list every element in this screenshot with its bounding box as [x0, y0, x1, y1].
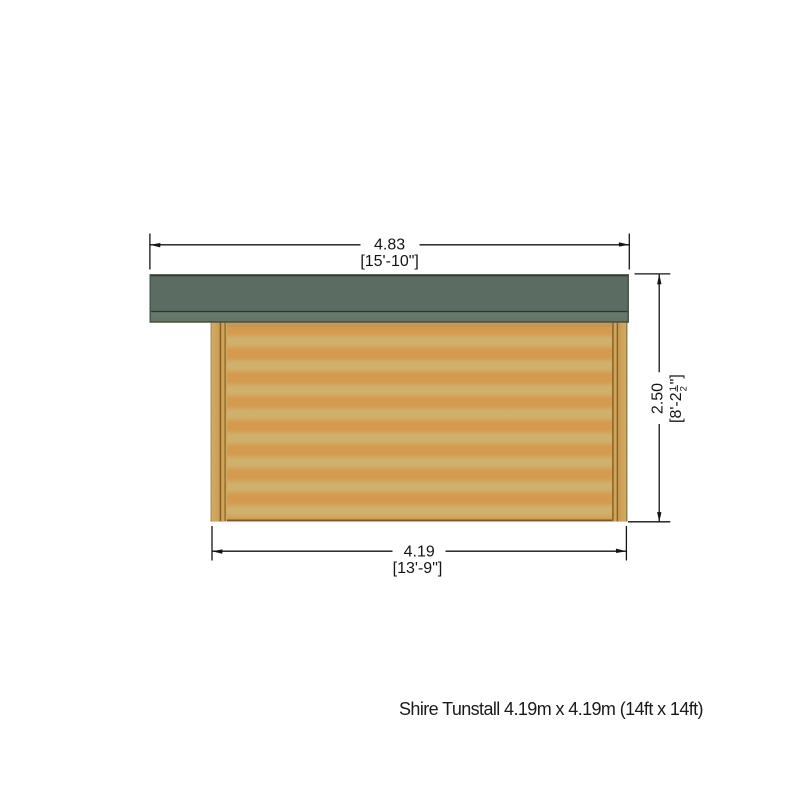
- svg-text:4.83: 4.83: [374, 237, 405, 254]
- svg-text:2: 2: [678, 386, 689, 391]
- svg-text:Shire Tunstall 4.19m x 4.19m (: Shire Tunstall 4.19m x 4.19m (14ft x 14f…: [399, 699, 703, 719]
- svg-text:2.50: 2.50: [650, 383, 667, 414]
- svg-text:[8'-2: [8'-2: [668, 392, 685, 423]
- svg-text:4.19: 4.19: [404, 543, 435, 560]
- svg-text:[13'-9"]: [13'-9"]: [393, 560, 443, 577]
- svg-text:"]: "]: [668, 374, 685, 384]
- svg-text:[15'-10"]: [15'-10"]: [360, 253, 419, 270]
